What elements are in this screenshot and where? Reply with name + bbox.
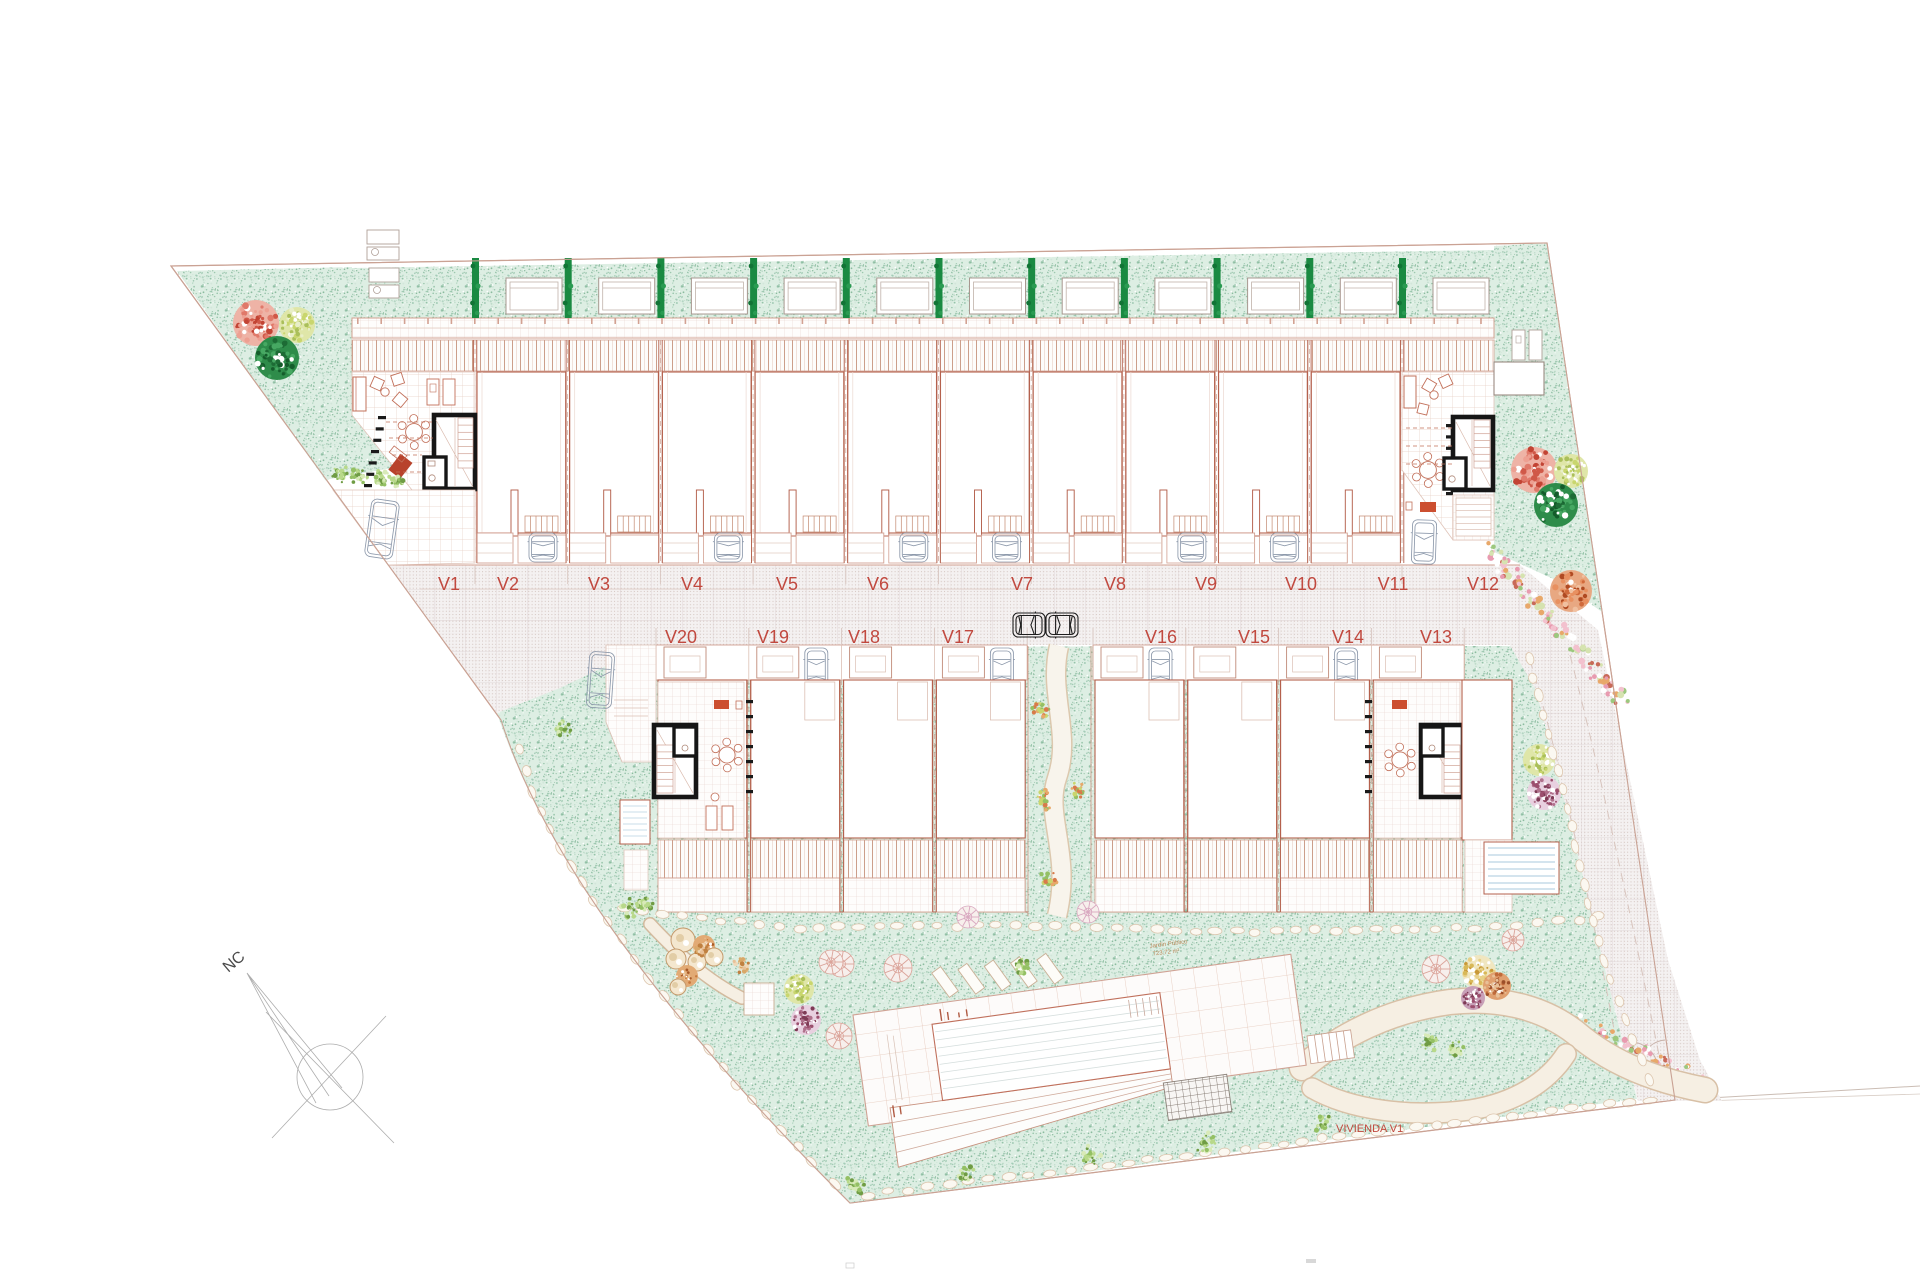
- svg-text:V16: V16: [1145, 627, 1177, 647]
- svg-text:V2: V2: [497, 574, 519, 594]
- svg-text:V3: V3: [588, 574, 610, 594]
- svg-text:V14: V14: [1332, 627, 1364, 647]
- svg-text:V5: V5: [776, 574, 798, 594]
- svg-text:V20: V20: [665, 627, 697, 647]
- svg-text:V7: V7: [1011, 574, 1033, 594]
- svg-text:V10: V10: [1285, 574, 1317, 594]
- svg-text:V19: V19: [757, 627, 789, 647]
- svg-text:V8: V8: [1104, 574, 1126, 594]
- svg-text:V6: V6: [867, 574, 889, 594]
- svg-text:V1: V1: [438, 574, 460, 594]
- svg-text:V13: V13: [1420, 627, 1452, 647]
- svg-text:V11: V11: [1378, 574, 1409, 594]
- svg-text:V17: V17: [942, 627, 974, 647]
- svg-text:V9: V9: [1195, 574, 1217, 594]
- svg-text:V4: V4: [681, 574, 703, 594]
- svg-text:V12: V12: [1467, 574, 1499, 594]
- svg-text:VIVIENDA V1: VIVIENDA V1: [1336, 1123, 1403, 1135]
- svg-text:V15: V15: [1238, 627, 1270, 647]
- svg-text:V18: V18: [848, 627, 880, 647]
